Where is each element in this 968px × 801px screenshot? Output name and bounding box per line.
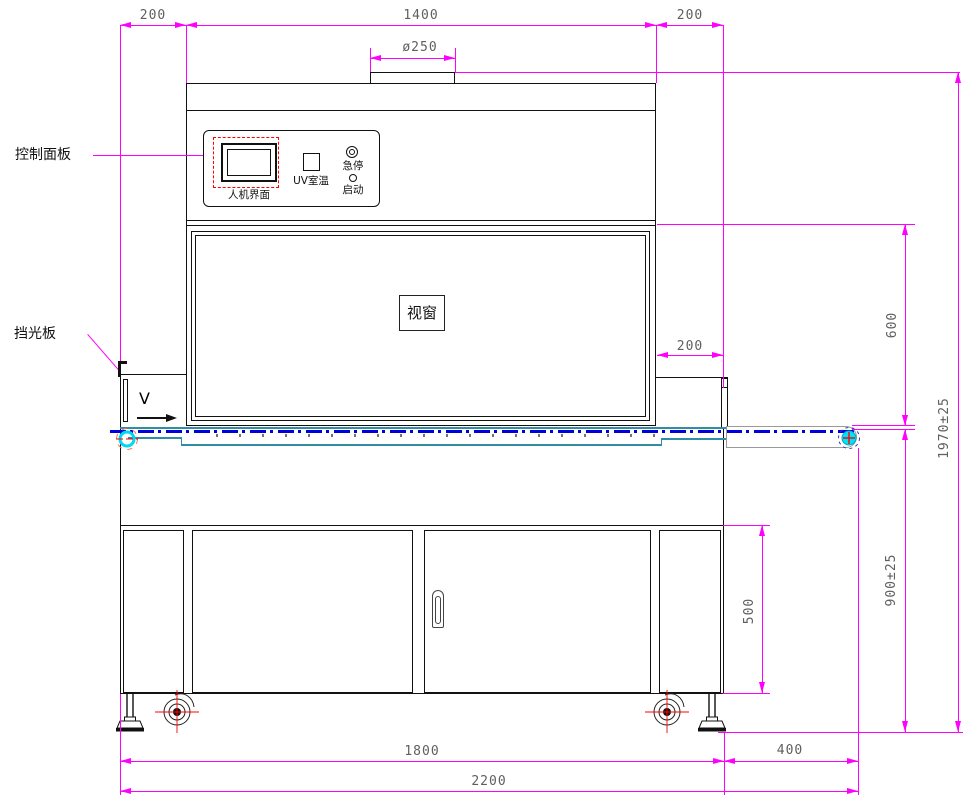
emergency-stop-button-inner — [349, 149, 355, 155]
arrowhead — [444, 55, 455, 61]
dim-600-text: 600 — [886, 305, 900, 345]
belt-frame-bottom-center — [181, 444, 662, 446]
arrowhead — [847, 788, 858, 794]
ext-duct-top-level — [455, 72, 960, 73]
arrowhead — [712, 352, 723, 358]
cabinet-panel-right — [659, 530, 721, 693]
arrowhead — [657, 352, 668, 358]
arrowhead — [847, 758, 858, 764]
caster-wheel-left-icon — [155, 689, 199, 733]
dim-500-line — [762, 525, 763, 693]
dim-400-text: 400 — [760, 744, 820, 758]
dim-1970-text: 1970±25 — [938, 383, 952, 473]
control-panel-leader-line — [93, 155, 203, 156]
cabinet-door-left[interactable] — [192, 530, 413, 693]
arrowhead — [370, 55, 381, 61]
ext-line-left — [120, 25, 121, 361]
entrance-tunnel-top — [121, 374, 186, 375]
viewport-label: 视窗 — [407, 305, 437, 321]
arrowhead — [175, 22, 186, 28]
dim-duct-line — [370, 58, 455, 59]
ext-duct-right — [455, 48, 456, 72]
cabinet-door-right[interactable] — [424, 530, 651, 693]
dim-top-right-text: 200 — [670, 9, 710, 23]
exhaust-duct — [370, 72, 455, 84]
arrowhead — [902, 415, 908, 426]
arrowhead — [955, 721, 961, 732]
control-section-divider-lower — [186, 225, 656, 226]
uv-temp-button[interactable] — [303, 153, 320, 171]
light-shield-bracket-horizontal — [118, 361, 127, 364]
hood-top-band-line — [186, 110, 656, 111]
direction-arrow-head — [166, 414, 177, 422]
arrowhead — [759, 682, 765, 693]
dim-duct-text: ø250 — [390, 41, 450, 55]
cabinet-panel-left — [123, 530, 184, 693]
ext-ground-level — [718, 732, 963, 733]
direction-arrow-shaft — [137, 417, 167, 419]
dim-400-line — [724, 761, 858, 762]
arrowhead — [186, 22, 197, 28]
light-shield-callout: 挡光板 — [14, 326, 56, 342]
ext-window-top-level — [657, 224, 915, 225]
uv-temp-label: UV室温 — [286, 176, 336, 187]
leveling-foot-left-icon — [112, 692, 148, 733]
arrowhead — [902, 721, 908, 732]
dim-1800-text: 1800 — [392, 745, 452, 759]
emergency-stop-label: 急停 — [342, 161, 364, 172]
direction-label: V — [139, 389, 150, 408]
ext-line-belt-end — [858, 448, 859, 795]
start-button[interactable] — [349, 174, 357, 182]
ext-cabinet-bottom — [723, 693, 770, 694]
cabinet-bottom-line — [120, 693, 724, 694]
arrowhead — [902, 224, 908, 235]
cabinet-top-line — [120, 525, 724, 526]
hmi-label: 人机界面 — [218, 190, 280, 201]
arrowhead — [120, 788, 131, 794]
ext-line-cabinet-right — [723, 25, 724, 388]
ext-line-hood-right — [656, 25, 657, 83]
dim-500-text: 500 — [743, 591, 757, 631]
ext-line-hood-left — [186, 25, 187, 83]
dim-1970-line — [958, 72, 959, 732]
dim-900-text: 900±25 — [885, 540, 899, 620]
dim-right-offset-text: 200 — [670, 340, 710, 354]
arrowhead — [656, 22, 667, 28]
viewport-label-box: 视窗 — [399, 295, 445, 331]
leveling-foot-right-icon — [694, 692, 730, 733]
belt-frame-bottom-right — [661, 438, 726, 440]
dim-900-line — [905, 429, 906, 732]
exit-wall-double — [721, 388, 728, 427]
arrowhead — [645, 22, 656, 28]
arrowhead — [759, 525, 765, 536]
arrowhead — [120, 758, 131, 764]
dim-top-center-text: 1400 — [391, 9, 451, 23]
light-shield-leader-line — [87, 334, 121, 372]
machine-drawing: 视窗 人机界面 UV室温 急停 启动 控制面板 挡光板 V — [0, 0, 968, 801]
belt-cleats — [195, 434, 655, 437]
ext-line-left-lower — [120, 694, 121, 795]
control-panel-callout: 控制面板 — [15, 147, 71, 163]
caster-wheel-right-icon — [645, 689, 689, 733]
dim-2200-line — [120, 791, 858, 792]
arrowhead — [902, 429, 908, 440]
dim-600-line — [905, 224, 906, 426]
arrowhead — [724, 758, 735, 764]
arrowhead — [955, 72, 961, 83]
door-handle-grip — [435, 596, 441, 624]
left-pulley-icon — [113, 425, 141, 453]
arrowhead — [713, 758, 724, 764]
dim-2200-text: 2200 — [459, 775, 519, 789]
control-section-divider-upper — [186, 220, 656, 221]
dim-top-left-text: 200 — [133, 9, 173, 23]
arrowhead — [120, 22, 131, 28]
dim-1800-line — [120, 761, 724, 762]
start-label: 启动 — [342, 185, 364, 196]
belt-frame-top — [120, 427, 726, 429]
arrowhead — [712, 22, 723, 28]
hmi-screen[interactable] — [227, 149, 271, 176]
right-side-wall — [723, 427, 724, 694]
exit-tunnel-top — [656, 377, 728, 378]
dim-top-line — [120, 25, 723, 26]
light-shield-plate — [123, 379, 128, 422]
